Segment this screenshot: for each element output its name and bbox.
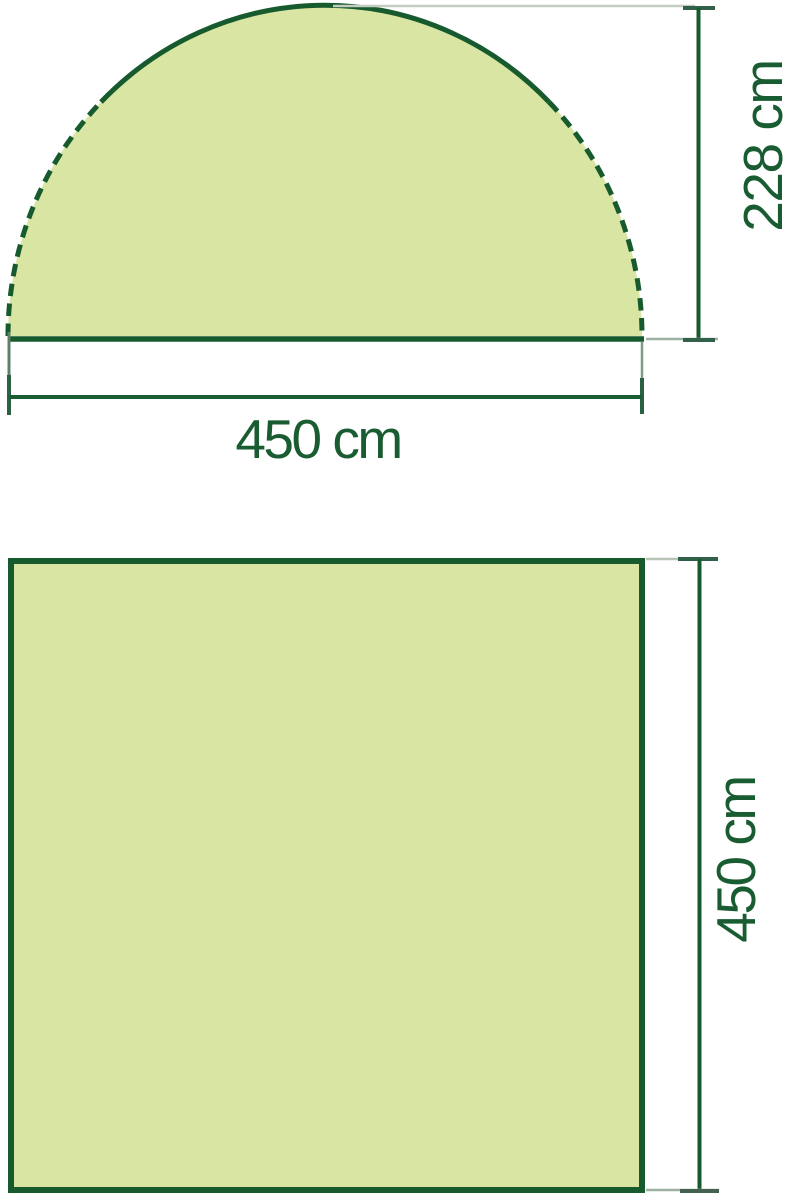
svg-text:228 cm: 228 cm	[732, 60, 794, 231]
svg-text:450 cm: 450 cm	[705, 777, 767, 942]
svg-text:450 cm: 450 cm	[235, 408, 400, 470]
